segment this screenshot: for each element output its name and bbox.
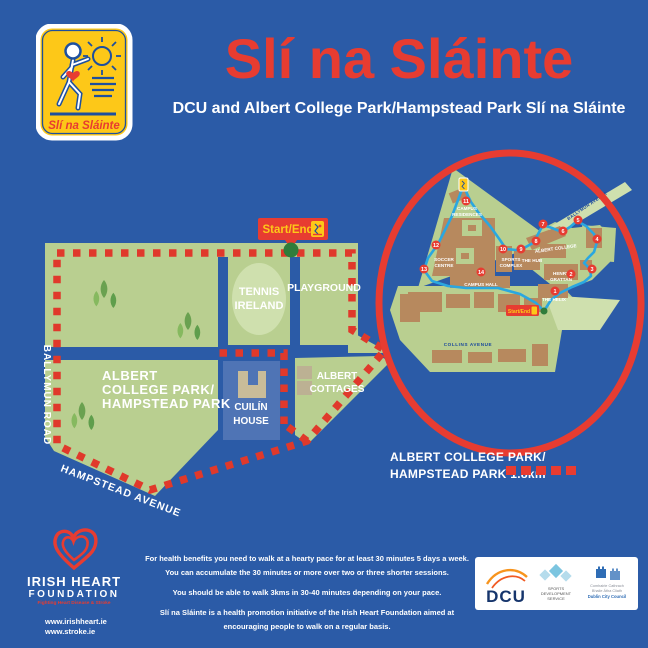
svg-text:6: 6 [561, 229, 564, 235]
inset-waypoint: 8 [532, 237, 541, 246]
start-end-dot [284, 243, 299, 258]
inset-waypoint: 7 [539, 220, 548, 229]
park-label-2: COLLEGE PARK/ [102, 382, 214, 397]
cuilin-house-block [223, 361, 280, 440]
inset-waypoint: 9 [517, 245, 526, 254]
inset-waypoint: 12 [432, 241, 441, 250]
inset-waypoint: 11 [462, 197, 471, 206]
ihf-name-2: FOUNDATION [18, 589, 130, 600]
svg-text:13: 13 [421, 267, 427, 273]
svg-text:1: 1 [553, 289, 556, 295]
svg-text:10: 10 [500, 247, 506, 253]
ihf-heart-icon [42, 524, 106, 572]
ballymun-road-label: BALLYMUN ROAD [41, 345, 52, 445]
soccer-centre-label-1: SOCCER [434, 257, 454, 262]
inset-waypoint: 6 [559, 227, 568, 236]
advice-line-1: For health benefits you need to walk at … [142, 552, 472, 566]
castle-icons [596, 566, 620, 580]
svg-text:12: 12 [433, 243, 439, 249]
inset-waypoint: 14 [477, 268, 486, 277]
the-hub-label: THE HUB [522, 258, 543, 263]
inset-waypoint: 1 [551, 287, 560, 296]
campus-residences-label-1: CAMPUS [457, 206, 477, 211]
legend-dash-sample [506, 466, 576, 475]
the-helix-label: THE HELIX [542, 297, 567, 302]
dcu-logo: DCU [479, 562, 533, 606]
inset-waypoint: 4 [593, 235, 602, 244]
park-label-1: ALBERT [102, 368, 158, 383]
campus-inset-map: CAMPUS RESIDENCES SOCCER CENTRE SPORTS C… [379, 153, 641, 453]
dcc-label-3: Dublin City Council [588, 594, 627, 599]
main-park-map: TENNIS IRELAND PLAYGROUND ALBERT COLLEGE… [41, 218, 390, 520]
advice-line-2: You can accumulate the 30 minutes or mor… [142, 566, 472, 580]
sports-complex-label-1: SPORTS [502, 257, 521, 262]
ihf-name-1: IRISH HEART [18, 574, 130, 589]
playground-label: PLAYGROUND [287, 282, 361, 294]
svg-text:8: 8 [534, 239, 537, 245]
svg-text:11: 11 [463, 199, 469, 205]
inset-start-end-dot [541, 308, 548, 315]
dcc-label-1: Comhairle Cathrach [590, 584, 624, 588]
inset-start-end-label: Start/End [508, 309, 530, 315]
ihf-url-irishheart: www.irishheart.ie [45, 617, 130, 627]
tennis-label-2: IRELAND [235, 300, 284, 312]
svg-text:9: 9 [519, 247, 522, 253]
inset-waypoint: 10 [499, 245, 508, 254]
inset-mini-logo-icon [459, 178, 468, 191]
campus-residences-label-2: RESIDENCES [452, 212, 482, 217]
sports-complex-label-2: COMPLEX [500, 263, 524, 268]
legend-line-1: ALBERT COLLEGE PARK/ [390, 449, 546, 466]
soccer-centre-label-2: CENTRE [435, 263, 454, 268]
dcu-wordmark: DCU [486, 587, 526, 606]
svg-text:2: 2 [569, 272, 572, 278]
cottage-building [297, 366, 312, 379]
advice-line-4: Slí na Sláinte is a health promotion ini… [142, 606, 472, 620]
ihf-tagline: Fighting Heart Disease & Stroke [18, 601, 130, 606]
start-end-mini-logo-icon [311, 221, 324, 237]
irish-heart-foundation-logo: IRISH HEART FOUNDATION Fighting Heart Di… [18, 524, 130, 637]
svg-text:5: 5 [576, 218, 579, 224]
advice-line-5: encouraging people to walk on a regular … [142, 620, 472, 634]
partner-logos-panel: DCU SPORTS DEVELOPMENT SERVICE Comhairle… [475, 557, 638, 610]
svg-text:7: 7 [541, 222, 544, 228]
park-label-3: HAMPSTEAD PARK [102, 396, 231, 411]
health-advice-text: For health benefits you need to walk at … [142, 552, 472, 634]
inset-waypoint: 13 [420, 265, 429, 274]
tennis-label-1: TENNIS [239, 286, 279, 298]
inset-waypoint: 3 [588, 265, 597, 274]
sports-development-service-logo: SPORTS DEVELOPMENT SERVICE [535, 562, 577, 606]
tennis-grounds [232, 263, 286, 335]
cottages-label-2: COTTAGES [310, 384, 365, 395]
dcc-label-2: Bhaile Átha Cliath [592, 589, 622, 593]
sli-na-slainte-sign: { "colors": { "background": "#2b5ba7", "… [0, 0, 648, 648]
dublin-city-council-logo: Comhairle Cathrach Bhaile Átha Cliath Du… [580, 562, 634, 606]
inset-waypoint: 5 [574, 216, 583, 225]
ihf-url-stroke: www.stroke.ie [45, 627, 130, 637]
start-end-label: Start/End [262, 224, 313, 236]
parcel-northwest [45, 243, 218, 347]
cuilin-label-1: CUILÍN [234, 400, 267, 413]
svg-text:14: 14 [478, 270, 485, 276]
cottages-label-1: ALBERT [317, 371, 358, 382]
advice-line-3: You should be able to walk 3kms in 30-40… [142, 586, 472, 600]
inset-waypoint: 2 [567, 270, 576, 279]
sds-label-3: SERVICE [548, 596, 566, 601]
svg-text:3: 3 [590, 267, 593, 273]
collins-avenue-label: COLLINS AVENUE [444, 342, 492, 347]
campus-hall-label: CAMPUS HALL [464, 282, 498, 287]
cuilin-label-2: HOUSE [233, 416, 269, 427]
